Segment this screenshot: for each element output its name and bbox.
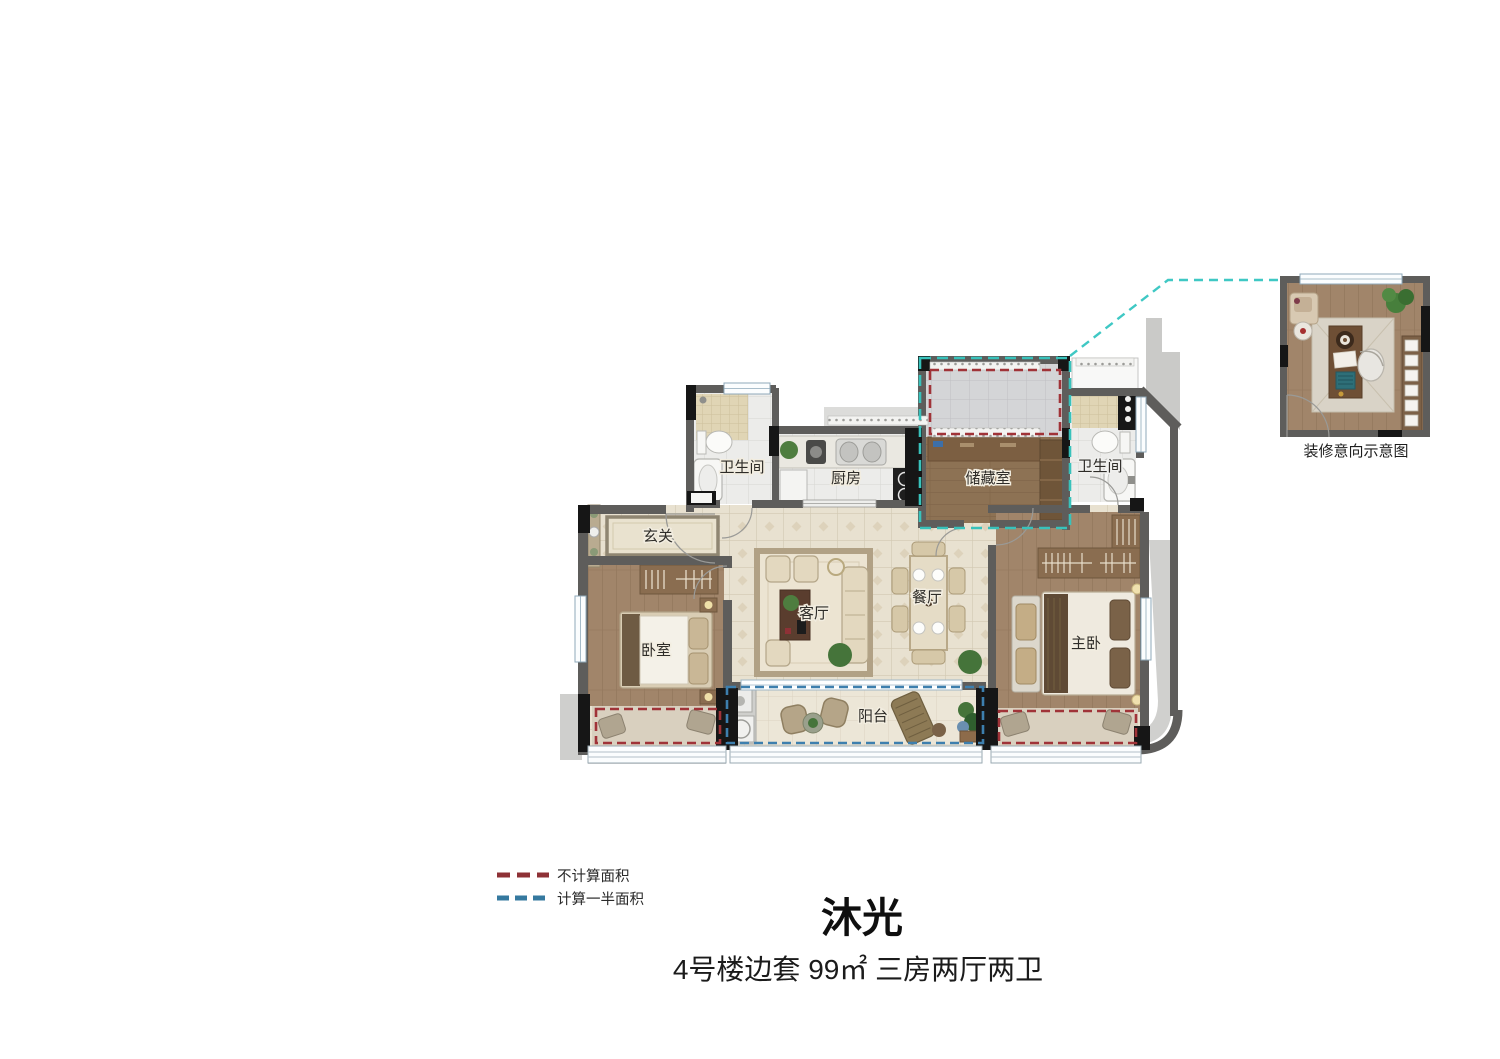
toilet-left: [697, 431, 732, 454]
shower-head-left: [700, 397, 707, 404]
equipment-platform-floor: [926, 364, 1062, 437]
floorplan-canvas: 卫生间 厨房 储藏室 卫生间 玄关 客厅 餐厅 卧室 主卧 阳台: [0, 0, 1500, 1059]
kitchen-plant: [780, 441, 798, 459]
storage-bench: [928, 437, 1040, 461]
detail-bookshelf: [1402, 336, 1422, 432]
label-dining: 餐厅: [912, 589, 942, 606]
label-foyer: 玄关: [643, 528, 673, 545]
bath-right-fixtures: [1118, 392, 1138, 430]
toilet-right: [1092, 431, 1130, 453]
balcony-floor: [726, 686, 984, 746]
label-kitchen: 厨房: [831, 470, 861, 487]
label-master: 主卧: [1071, 635, 1101, 652]
sill-balcony: [730, 746, 982, 763]
storage-vent-strip: [932, 428, 1040, 437]
decor-detail-diagram: 装修意向示意图: [1280, 274, 1430, 460]
detail-sofa: [1290, 293, 1318, 324]
bath-right-shower-tile: [1072, 396, 1118, 428]
living-plant: [828, 643, 852, 667]
label-living: 客厅: [799, 605, 829, 622]
floorplan-page: 卫生间 厨房 储藏室 卫生间 玄关 客厅 餐厅 卧室 主卧 阳台: [0, 0, 1500, 1059]
label-bath-right: 卫生间: [1077, 458, 1122, 475]
kitchen-vent-strip: [828, 416, 928, 425]
label-balcony: 阳台: [858, 708, 888, 725]
detail-chair: [1358, 349, 1384, 381]
bedroom-wardrobe: [640, 565, 718, 594]
label-bath-left: 卫生间: [719, 459, 764, 476]
kitchen-sliding-door: [803, 500, 876, 507]
detail-caption: 装修意向示意图: [1303, 442, 1408, 460]
sill-left-bay: [588, 746, 726, 763]
bath-right-vent-strip: [1076, 358, 1134, 366]
legend-half-counted-label: 计算一半面积: [557, 891, 644, 908]
plan-title: 沐光: [821, 895, 903, 941]
detail-window: [1300, 274, 1402, 284]
legend-not-counted-label: 不计算面积: [557, 868, 630, 885]
label-storage: 储藏室: [965, 470, 1010, 487]
balcony-side-table: [932, 723, 946, 737]
detail-desk: [1329, 326, 1362, 398]
window-bath-right: [1136, 397, 1146, 452]
window-bedroom-left: [575, 596, 586, 662]
detail-side-table: [1294, 322, 1312, 340]
master-bench: [1012, 596, 1040, 692]
main-floorplan: 卫生间 厨房 储藏室 卫生间 玄关 客厅 餐厅 卧室 主卧 阳台: [560, 280, 1284, 764]
window-bath-left: [724, 383, 770, 394]
detail-connector-line: [1070, 280, 1284, 356]
dining-plant: [958, 650, 982, 674]
plan-subtitle: 4号楼边套 99㎡ 三房两厅两卫: [673, 954, 1043, 985]
label-bedroom: 卧室: [641, 642, 671, 659]
kitchen-counter: [779, 436, 914, 468]
legend: 不计算面积 计算一半面积: [497, 868, 644, 908]
balcony-sliding-window: [741, 680, 962, 690]
window-master-right: [1141, 598, 1151, 660]
sill-right-bay: [991, 746, 1141, 763]
